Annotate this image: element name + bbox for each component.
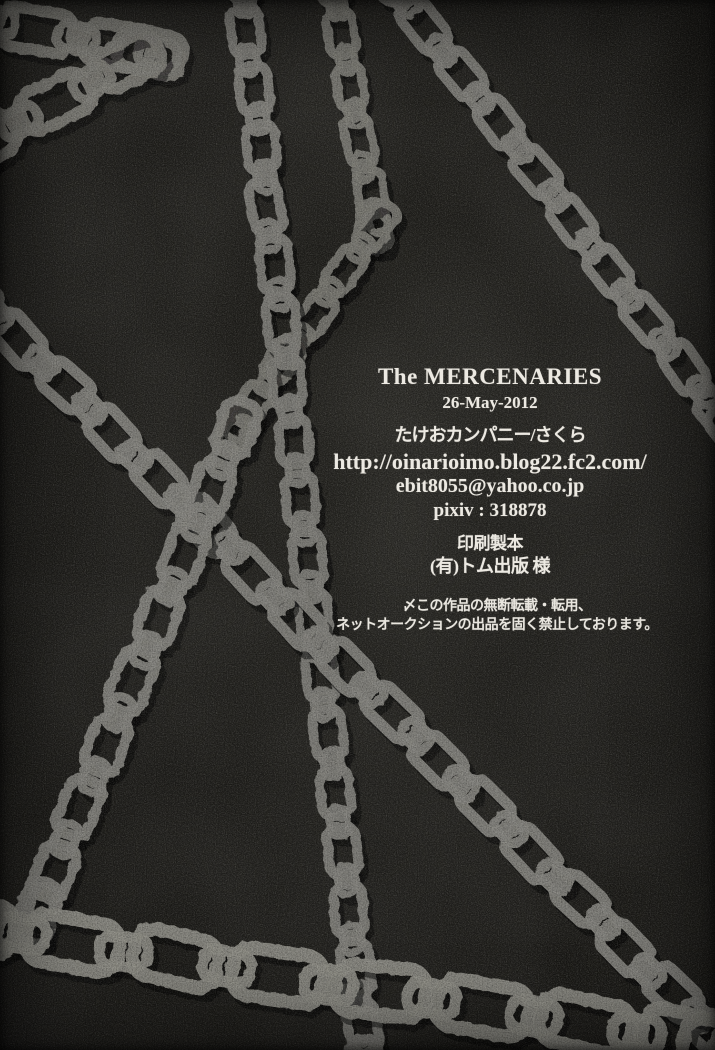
doujin-colophon-page: The MERCENARIES 26-May-2012 たけおカンパニー/さくら… — [0, 0, 715, 1050]
credits-block: The MERCENARIES 26-May-2012 たけおカンパニー/さくら… — [260, 362, 715, 578]
notice-line-1: 〆この作品の無断転載・転用、 — [177, 597, 715, 616]
circle-name: たけおカンパニー/さくら — [260, 422, 715, 449]
notice-line-2: ネットオークションの出品を固く禁止しております。 — [177, 616, 715, 635]
printing-heading: 印刷製本 — [260, 533, 715, 555]
printer-name: (有)トム出版 様 — [260, 555, 715, 578]
pixiv-id: pixiv : 318878 — [260, 499, 715, 523]
website-url: http://oinarioimo.blog22.fc2.com/ — [260, 449, 715, 474]
email-address: ebit8055@yahoo.co.jp — [260, 474, 715, 499]
release-date: 26-May-2012 — [260, 392, 715, 414]
book-title: The MERCENARIES — [260, 362, 715, 392]
copyright-notice: 〆この作品の無断転載・転用、 ネットオークションの出品を固く禁止しております。 — [177, 597, 715, 635]
